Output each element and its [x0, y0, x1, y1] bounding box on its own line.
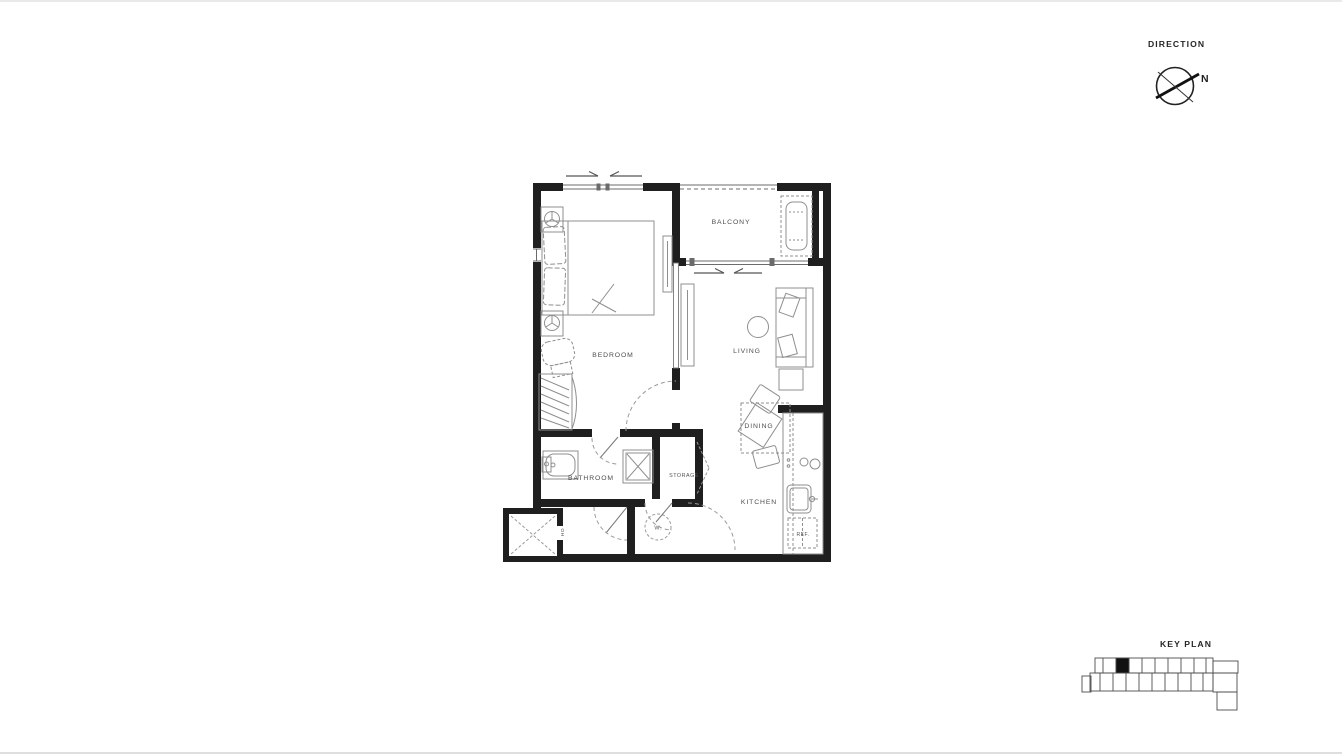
bedroom-furniture: [539, 207, 672, 430]
direction-panel: DIRECTION N: [1148, 39, 1209, 105]
dining-chair: [752, 445, 780, 469]
kitchen-label: KITCHEN: [741, 499, 777, 506]
dining-label: DINING: [744, 423, 773, 430]
cooktop-icon: [787, 458, 820, 469]
kitchen-sink-icon: [787, 485, 818, 513]
bathroom-door: [592, 437, 618, 464]
bedroom-door-arc: [626, 381, 676, 431]
sofa: [776, 288, 813, 367]
north-label: N: [1201, 73, 1209, 85]
floor-plan-canvas: BALCONY BEDROOM LIVING DINING KITCHEN BA…: [0, 0, 1342, 754]
wardrobe: [539, 374, 577, 430]
living-label: LIVING: [733, 348, 761, 355]
room-labels: BALCONY BEDROOM LIVING DINING KITCHEN BA…: [560, 219, 810, 538]
bed: [542, 221, 654, 315]
windows-and-railings: [532, 184, 809, 368]
living-furniture: [681, 284, 813, 390]
door-swing-arcs: [592, 381, 735, 550]
dining-chair: [749, 384, 780, 414]
entry-door: [594, 507, 627, 540]
refrigerator-label: REF.: [796, 532, 809, 538]
balcony-items: [781, 196, 812, 256]
key-plan-highlighted-unit: [1116, 658, 1129, 673]
hall-door-arc: [688, 503, 735, 550]
compass-icon: [1156, 68, 1199, 105]
utility-label: HO: [560, 528, 566, 536]
storage-label: STORAGE: [669, 473, 699, 479]
direction-title: DIRECTION: [1148, 39, 1205, 49]
balcony-label: BALCONY: [712, 219, 751, 226]
ac-ledge-cross: [511, 516, 555, 554]
ac-condenser-unit: [781, 196, 812, 256]
key-plan-panel: KEY PLAN: [1082, 639, 1238, 710]
key-plan-title: KEY PLAN: [1160, 639, 1212, 649]
bedroom-label: BEDROOM: [592, 352, 633, 359]
washer-label: W.: [654, 526, 661, 532]
shower-icon: [623, 450, 653, 483]
scanned-floorplan-page: BALCONY BEDROOM LIVING DINING KITCHEN BA…: [0, 0, 1342, 754]
bathroom-label: BATHROOM: [568, 475, 614, 482]
tv-panel-bedroom: [663, 236, 672, 292]
armchair: [540, 337, 579, 379]
coffee-table: [748, 317, 769, 338]
key-plan-building: [1082, 658, 1238, 710]
tv-cabinet-living: [681, 284, 694, 366]
side-table: [779, 369, 803, 390]
